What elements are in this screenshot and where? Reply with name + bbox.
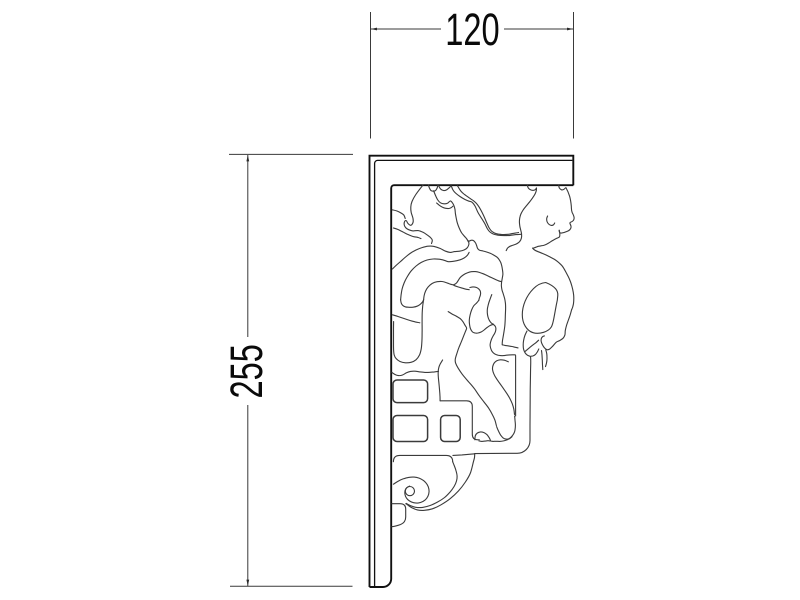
svg-text:255: 255	[222, 344, 272, 398]
svg-text:120: 120	[445, 5, 499, 55]
